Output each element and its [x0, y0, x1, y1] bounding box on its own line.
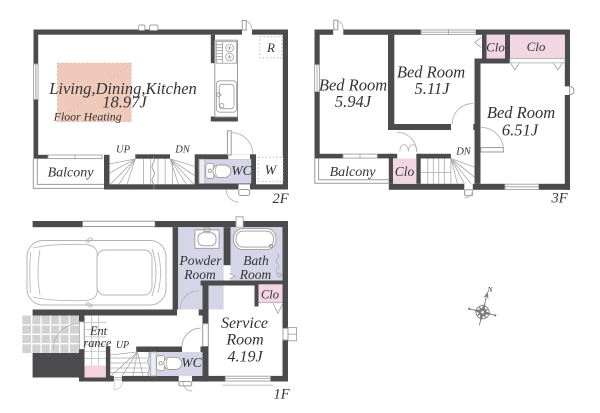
svg-text:Balcony: Balcony — [330, 165, 377, 180]
svg-text:R: R — [266, 40, 275, 55]
svg-text:DN: DN — [455, 147, 472, 158]
svg-text:N: N — [487, 286, 493, 294]
svg-text:Clo: Clo — [527, 39, 546, 54]
svg-text:Service: Service — [221, 315, 268, 332]
svg-text:Room: Room — [225, 332, 263, 349]
svg-text:2F: 2F — [272, 191, 288, 207]
svg-text:Floor Heating: Floor Heating — [53, 110, 122, 124]
svg-text:5.94J: 5.94J — [335, 92, 372, 111]
svg-text:Bath: Bath — [243, 253, 269, 268]
svg-text:Clo: Clo — [395, 164, 415, 179]
svg-text:Room: Room — [239, 267, 272, 282]
svg-text:5.11J: 5.11J — [415, 79, 451, 98]
svg-text:Bed Room: Bed Room — [487, 103, 555, 122]
svg-text:Room: Room — [183, 267, 216, 282]
svg-text:UP: UP — [116, 145, 131, 156]
svg-text:Clo: Clo — [486, 40, 505, 55]
svg-text:1F: 1F — [273, 386, 289, 402]
svg-text:6.51J: 6.51J — [502, 121, 539, 140]
svg-text:DN: DN — [174, 145, 191, 156]
svg-text:WC: WC — [231, 163, 252, 178]
svg-text:W: W — [265, 164, 278, 179]
svg-text:Powder: Powder — [179, 253, 223, 268]
svg-text:Clo: Clo — [261, 288, 279, 302]
svg-text:4.19J: 4.19J — [227, 349, 263, 366]
svg-text:rance: rance — [84, 336, 113, 350]
svg-text:3F: 3F — [550, 191, 567, 207]
svg-text:WC: WC — [181, 355, 202, 370]
svg-text:UP: UP — [116, 340, 129, 351]
svg-text:Balcony: Balcony — [48, 166, 95, 181]
